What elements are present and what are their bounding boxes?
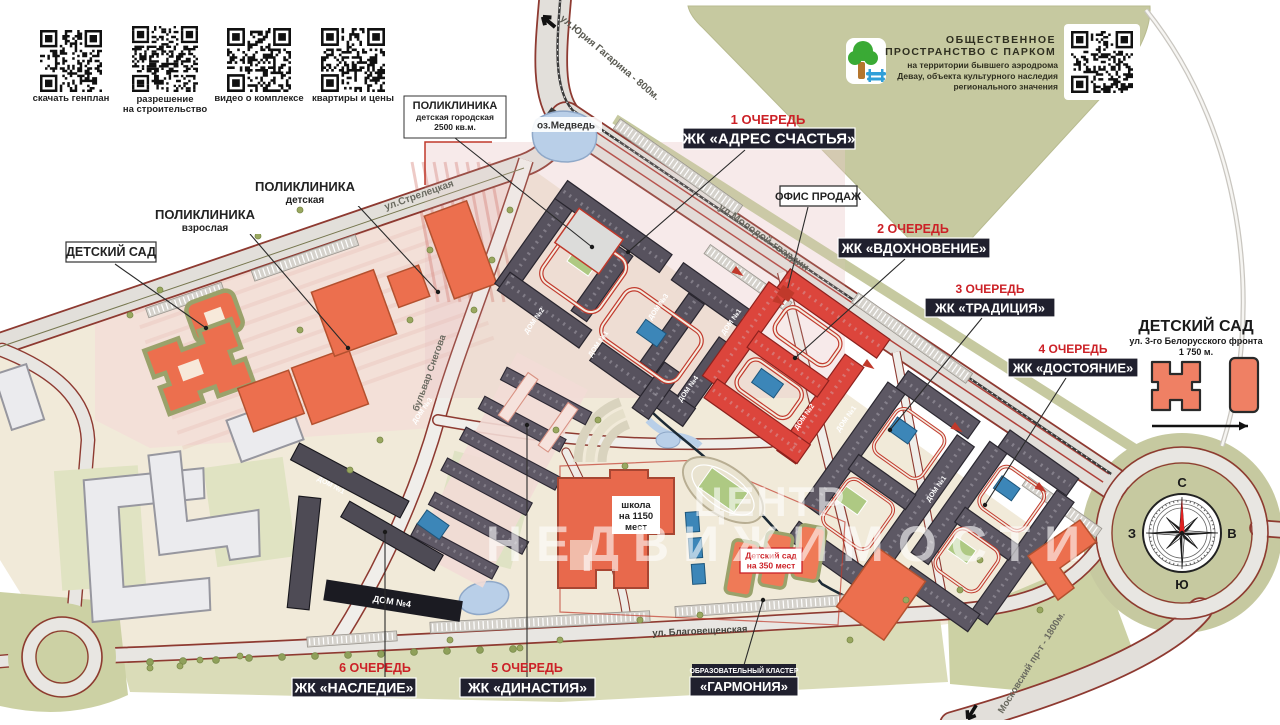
svg-text:ЖК «ДИНАСТИЯ»: ЖК «ДИНАСТИЯ»	[467, 680, 587, 696]
svg-text:ЖК «ТРАДИЦИЯ»: ЖК «ТРАДИЦИЯ»	[934, 301, 1045, 316]
svg-text:ДЕТСКИЙ САД: ДЕТСКИЙ САД	[1138, 316, 1254, 335]
svg-text:С: С	[1177, 475, 1187, 490]
svg-text:НЕДВИЖИМОСТИ: НЕДВИЖИМОСТИ	[486, 516, 1094, 572]
svg-text:ул. 3-го Белорусского фронта: ул. 3-го Белорусского фронта	[1129, 336, 1263, 346]
svg-text:квартиры и цены: квартиры и цены	[312, 93, 394, 104]
svg-text:5 ОЧЕРЕДЬ: 5 ОЧЕРЕДЬ	[491, 661, 563, 675]
svg-text:ПОЛИКЛИНИКА: ПОЛИКЛИНИКА	[413, 100, 498, 112]
svg-text:ПОЛИКЛИНИКА: ПОЛИКЛИНИКА	[155, 207, 256, 222]
svg-text:ПОЛИКЛИНИКА: ПОЛИКЛИНИКА	[255, 179, 356, 194]
svg-text:видео о комплексе: видео о комплексе	[214, 93, 303, 104]
svg-text:3 ОЧЕРЕДЬ: 3 ОЧЕРЕДЬ	[956, 282, 1025, 296]
svg-text:школа: школа	[621, 500, 651, 511]
svg-text:ОБРАЗОВАТЕЛЬНЫЙ КЛАСТЕР: ОБРАЗОВАТЕЛЬНЫЙ КЛАСТЕР	[689, 666, 798, 675]
svg-text:Ю: Ю	[1175, 577, 1188, 592]
svg-text:З: З	[1128, 526, 1136, 541]
svg-text:на территории бывшего аэродром: на территории бывшего аэродрома	[907, 60, 1058, 70]
svg-text:1 ОЧЕРЕДЬ: 1 ОЧЕРЕДЬ	[731, 112, 806, 127]
svg-text:1 750 м.: 1 750 м.	[1179, 347, 1213, 357]
svg-text:регионального значения: регионального значения	[953, 82, 1058, 92]
svg-text:Девау, объекта культурного нас: Девау, объекта культурного наследия	[897, 71, 1058, 81]
svg-text:детская городская: детская городская	[416, 112, 494, 122]
svg-text:4 ОЧЕРЕДЬ: 4 ОЧЕРЕДЬ	[1039, 342, 1108, 356]
svg-text:«ГАРМОНИЯ»: «ГАРМОНИЯ»	[700, 679, 788, 694]
svg-text:2 ОЧЕРЕДЬ: 2 ОЧЕРЕДЬ	[877, 222, 949, 236]
svg-text:ЖК «ВДОХНОВЕНИЕ»: ЖК «ВДОХНОВЕНИЕ»	[841, 241, 987, 256]
svg-text:ПРОСТРАНСТВО С ПАРКОМ: ПРОСТРАНСТВО С ПАРКОМ	[885, 46, 1056, 58]
svg-text:детская: детская	[286, 195, 325, 206]
svg-text:ЖК «НАСЛЕДИЕ»: ЖК «НАСЛЕДИЕ»	[294, 680, 414, 696]
svg-text:В: В	[1227, 526, 1236, 541]
svg-text:ЖК «ДОСТОЯНИЕ»: ЖК «ДОСТОЯНИЕ»	[1012, 361, 1134, 376]
svg-text:ДЕТСКИЙ САД: ДЕТСКИЙ САД	[66, 244, 156, 259]
svg-text:ОФИС ПРОДАЖ: ОФИС ПРОДАЖ	[775, 191, 861, 203]
svg-text:ЖК «АДРЕС СЧАСТЬЯ»: ЖК «АДРЕС СЧАСТЬЯ»	[682, 131, 856, 148]
svg-text:2500 кв.м.: 2500 кв.м.	[434, 122, 476, 132]
svg-text:скачать генплан: скачать генплан	[33, 93, 110, 104]
svg-text:оз.Медведь: оз.Медведь	[537, 121, 595, 132]
svg-text:ОБЩЕСТВЕННОЕ: ОБЩЕСТВЕННОЕ	[946, 34, 1056, 46]
svg-text:на строительство: на строительство	[123, 104, 208, 115]
svg-text:взрослая: взрослая	[182, 223, 229, 234]
svg-text:6 ОЧЕРЕДЬ: 6 ОЧЕРЕДЬ	[339, 661, 411, 675]
